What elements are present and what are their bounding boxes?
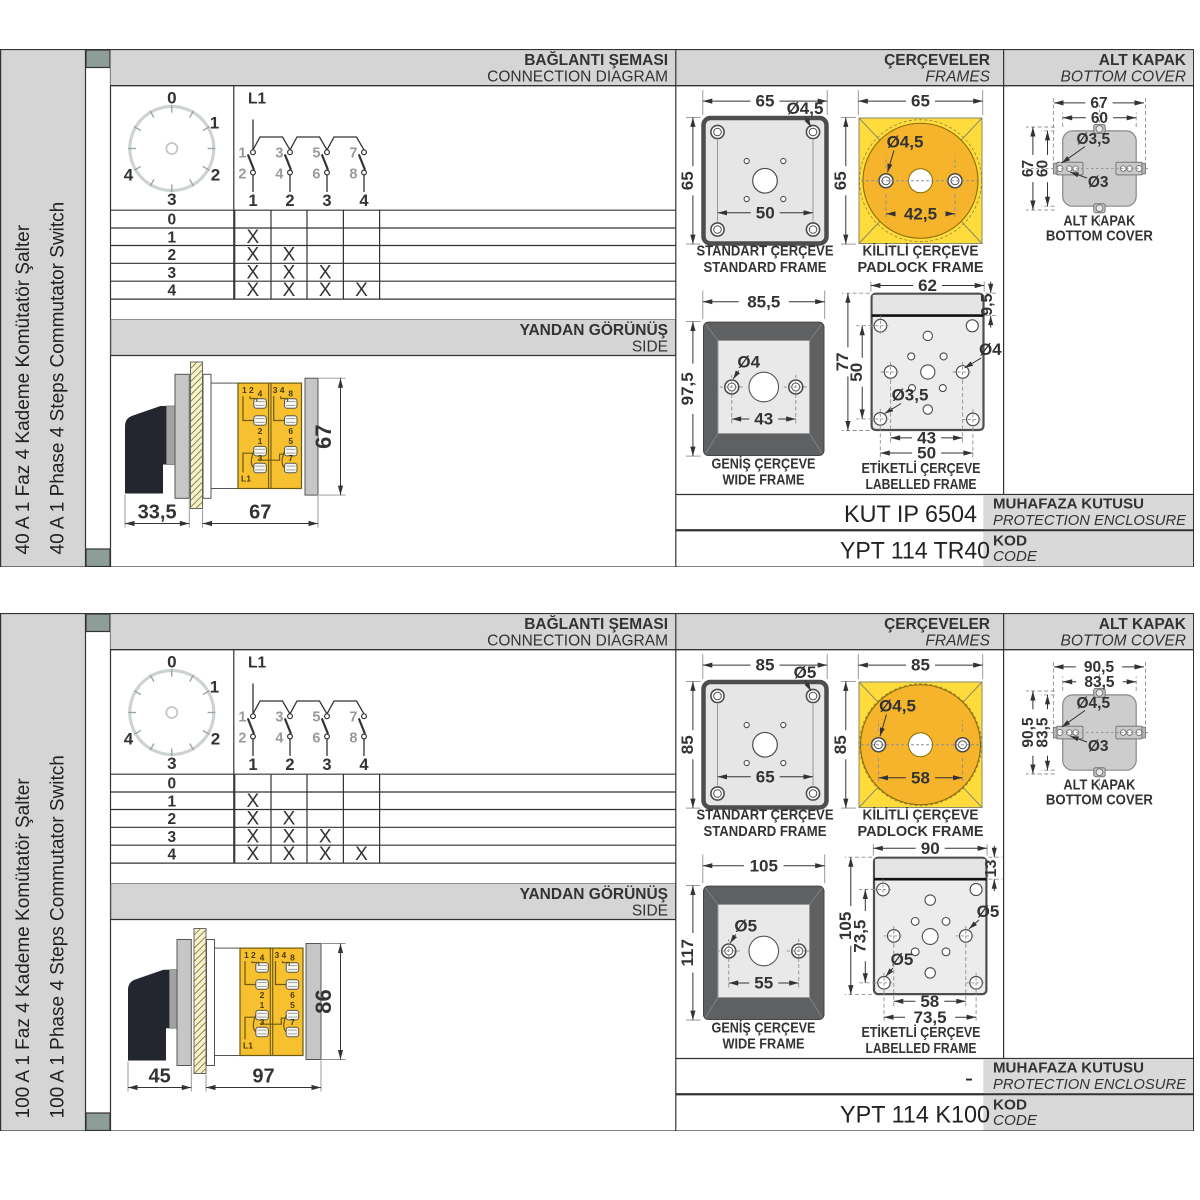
svg-text:Ø4,5: Ø4,5 [887,132,924,151]
svg-text:50: 50 [756,203,775,222]
svg-text:CODE: CODE [993,548,1038,565]
svg-text:MUHAFAZA KUTUSU: MUHAFAZA KUTUSU [993,495,1144,512]
svg-text:PADLOCK FRAME: PADLOCK FRAME [858,259,984,276]
svg-text:117: 117 [678,939,697,966]
svg-text:L1: L1 [241,473,251,483]
svg-text:45: 45 [149,1065,171,1087]
svg-text:65: 65 [756,767,775,786]
svg-text:GENİŞ ÇERÇEVE: GENİŞ ÇERÇEVE [712,1019,816,1036]
svg-text:3: 3 [167,264,176,281]
svg-text:6: 6 [290,990,295,1000]
svg-text:YANDAN GÖRÜNÜŞ: YANDAN GÖRÜNÜŞ [520,322,668,339]
svg-text:GENİŞ ÇERÇEVE: GENİŞ ÇERÇEVE [712,455,816,472]
svg-text:L1: L1 [248,654,266,671]
svg-text:KOD: KOD [993,1096,1027,1113]
svg-text:1: 1 [238,709,246,725]
svg-text:CONNECTION DIAGRAM: CONNECTION DIAGRAM [487,632,668,649]
svg-text:85: 85 [911,655,930,674]
svg-text:L1: L1 [248,90,266,107]
svg-text:BOTTOM COVER: BOTTOM COVER [1061,68,1186,85]
svg-text:83,5: 83,5 [1084,673,1115,690]
svg-text:ALT KAPAK: ALT KAPAK [1099,616,1187,633]
svg-text:0: 0 [167,775,176,792]
svg-text:8: 8 [290,952,295,962]
svg-text:2: 2 [211,165,220,184]
svg-text:6: 6 [312,730,320,746]
svg-text:50: 50 [847,362,866,381]
svg-text:7: 7 [349,709,357,725]
svg-text:1: 1 [167,229,176,246]
svg-text:62: 62 [918,276,937,295]
svg-text:5: 5 [288,436,293,446]
svg-text:X: X [283,844,296,865]
svg-text:1: 1 [248,756,257,774]
svg-text:1: 1 [260,1000,265,1010]
svg-text:X: X [355,844,368,865]
svg-text:3: 3 [167,828,176,845]
svg-text:4: 4 [167,846,176,863]
svg-text:4: 4 [275,166,283,182]
svg-text:BOTTOM COVER: BOTTOM COVER [1046,227,1153,244]
svg-text:7: 7 [288,453,293,463]
svg-text:Ø3,5: Ø3,5 [892,385,929,404]
svg-text:YANDAN GÖRÜNÜŞ: YANDAN GÖRÜNÜŞ [520,886,668,903]
svg-text:ETİKETLİ ÇERÇEVE: ETİKETLİ ÇERÇEVE [862,1024,981,1041]
svg-text:83,5: 83,5 [1035,717,1052,748]
svg-text:3: 3 [322,756,331,774]
svg-text:CONNECTION DIAGRAM: CONNECTION DIAGRAM [487,68,668,85]
svg-text:STANDARD FRAME: STANDARD FRAME [704,823,827,840]
svg-text:9,5: 9,5 [979,293,996,315]
svg-text:42,5: 42,5 [904,204,937,223]
svg-text:X: X [246,844,259,865]
svg-text:Ø3: Ø3 [1088,738,1109,755]
svg-text:X: X [355,280,368,301]
svg-text:KİLİTLİ ÇERÇEVE: KİLİTLİ ÇERÇEVE [863,806,979,823]
svg-text:Ø4: Ø4 [979,339,1002,358]
svg-text:60: 60 [1091,109,1108,126]
svg-text:2: 2 [258,426,263,436]
svg-text:1: 1 [258,436,263,446]
svg-text:YPT 114 K100: YPT 114 K100 [840,1101,990,1128]
svg-text:ÇERÇEVELER: ÇERÇEVELER [884,616,990,633]
svg-text:ÇERÇEVELER: ÇERÇEVELER [884,52,990,69]
svg-text:1: 1 [210,113,219,132]
svg-text:STANDART ÇERÇEVE: STANDART ÇERÇEVE [697,242,834,259]
svg-text:BOTTOM COVER: BOTTOM COVER [1061,632,1186,649]
svg-text:97: 97 [252,1065,274,1087]
svg-text:86: 86 [311,989,336,1013]
svg-text:1: 1 [242,385,247,395]
svg-text:65: 65 [831,171,850,190]
svg-text:Ø4,5: Ø4,5 [1076,695,1110,712]
svg-text:3: 3 [275,950,280,960]
svg-text:2: 2 [285,756,294,774]
svg-text:3: 3 [322,192,331,210]
svg-text:STANDARD FRAME: STANDARD FRAME [704,259,827,276]
svg-text:FRAMES: FRAMES [925,68,990,85]
svg-text:8: 8 [288,388,293,398]
svg-text:8: 8 [349,166,357,182]
svg-text:2: 2 [211,729,220,748]
svg-text:4: 4 [280,385,285,395]
svg-text:Ø5: Ø5 [794,663,817,682]
svg-text:Ø4: Ø4 [737,352,760,371]
svg-text:PROTECTION ENCLOSURE: PROTECTION ENCLOSURE [993,512,1187,529]
svg-text:6: 6 [288,426,293,436]
svg-text:0: 0 [167,211,176,228]
svg-text:MUHAFAZA KUTUSU: MUHAFAZA KUTUSU [993,1059,1144,1076]
svg-text:1: 1 [167,793,176,810]
svg-text:X: X [246,280,259,301]
svg-text:4: 4 [167,282,176,299]
svg-text:85: 85 [756,655,775,674]
svg-text:BOTTOM COVER: BOTTOM COVER [1046,791,1153,808]
svg-text:4: 4 [260,952,265,962]
svg-text:97,5: 97,5 [678,372,697,405]
svg-text:Ø3,5: Ø3,5 [1076,131,1110,148]
svg-text:X: X [319,844,332,865]
svg-text:5: 5 [290,1000,295,1010]
svg-text:85: 85 [678,735,697,754]
svg-text:4: 4 [258,388,263,398]
svg-text:65: 65 [756,91,775,110]
svg-text:85,5: 85,5 [747,292,780,311]
svg-text:KOD: KOD [993,532,1027,549]
svg-text:73,5: 73,5 [850,919,869,952]
svg-text:Ø4,5: Ø4,5 [879,696,916,715]
svg-text:ALT KAPAK: ALT KAPAK [1099,52,1187,69]
svg-text:LABELLED FRAME: LABELLED FRAME [866,1040,977,1057]
svg-text:4: 4 [359,756,369,774]
svg-text:3: 3 [275,709,283,725]
svg-text:6: 6 [312,166,320,182]
svg-text:L1: L1 [243,1040,253,1050]
svg-text:1: 1 [210,677,219,696]
svg-text:Ø4,5: Ø4,5 [787,99,824,118]
svg-text:4: 4 [359,192,369,210]
svg-text:BAĞLANTI ŞEMASI: BAĞLANTI ŞEMASI [524,615,668,633]
svg-text:7: 7 [290,1017,295,1027]
svg-text:65: 65 [678,171,697,190]
svg-text:2: 2 [167,246,176,263]
svg-text:90: 90 [921,838,940,857]
svg-text:-: - [965,1065,973,1092]
svg-text:2: 2 [238,166,246,182]
svg-text:67: 67 [311,424,336,448]
svg-text:5: 5 [312,145,320,161]
svg-text:SIDE: SIDE [632,338,668,355]
svg-text:Ø5: Ø5 [734,916,757,935]
svg-text:KİLİTLİ ÇERÇEVE: KİLİTLİ ÇERÇEVE [863,242,979,259]
svg-text:0: 0 [167,88,176,107]
svg-text:4: 4 [282,950,287,960]
svg-text:Ø3: Ø3 [1088,174,1109,191]
svg-text:100 A 1 Phase 4 Steps Commutat: 100 A 1 Phase 4 Steps Commutator Switch [48,755,69,1118]
svg-text:2: 2 [167,810,176,827]
svg-text:7: 7 [349,145,357,161]
svg-text:2: 2 [238,730,246,746]
svg-text:FRAMES: FRAMES [925,632,990,649]
svg-text:PROTECTION ENCLOSURE: PROTECTION ENCLOSURE [993,1076,1187,1093]
svg-text:SIDE: SIDE [632,902,668,919]
svg-text:3: 3 [167,190,176,209]
svg-text:3: 3 [273,385,278,395]
svg-text:2: 2 [249,385,254,395]
svg-text:4: 4 [275,730,283,746]
svg-text:LABELLED FRAME: LABELLED FRAME [866,476,977,493]
svg-text:0: 0 [167,652,176,671]
svg-text:1: 1 [238,145,246,161]
svg-text:67: 67 [249,501,271,523]
svg-text:STANDART ÇERÇEVE: STANDART ÇERÇEVE [697,806,834,823]
svg-text:1: 1 [248,192,257,210]
svg-text:40 A 1 Phase 4 Steps Commutato: 40 A 1 Phase 4 Steps Commutator Switch [48,201,69,554]
svg-text:X: X [319,280,332,301]
svg-text:YPT 114 TR40: YPT 114 TR40 [840,537,990,564]
svg-text:KUT IP 6504: KUT IP 6504 [844,501,977,528]
svg-text:60: 60 [1035,159,1052,176]
svg-text:BAĞLANTI ŞEMASI: BAĞLANTI ŞEMASI [524,51,668,69]
svg-text:5: 5 [312,709,320,725]
svg-text:2: 2 [260,990,265,1000]
svg-text:1: 1 [244,950,249,960]
svg-text:4: 4 [124,165,134,184]
svg-text:4: 4 [124,729,134,748]
svg-text:40 A 1 Faz 4 Kademe Komütatör: 40 A 1 Faz 4 Kademe Komütatör Şalter [13,224,34,554]
svg-text:3: 3 [275,145,283,161]
svg-text:CODE: CODE [993,1112,1038,1129]
svg-text:33,5: 33,5 [138,501,177,523]
svg-text:X: X [283,280,296,301]
svg-text:58: 58 [911,768,930,787]
svg-text:85: 85 [831,735,850,754]
svg-text:8: 8 [349,730,357,746]
svg-text:43: 43 [754,409,773,428]
svg-text:ETİKETLİ ÇERÇEVE: ETİKETLİ ÇERÇEVE [862,460,981,477]
svg-text:65: 65 [911,91,930,110]
svg-text:WIDE FRAME: WIDE FRAME [723,1035,805,1052]
svg-text:3: 3 [167,754,176,773]
svg-text:WIDE FRAME: WIDE FRAME [723,471,805,488]
svg-text:PADLOCK FRAME: PADLOCK FRAME [858,823,984,840]
svg-text:105: 105 [750,856,778,875]
svg-text:13: 13 [983,859,1000,877]
svg-text:2: 2 [285,192,294,210]
svg-text:2: 2 [251,950,256,960]
svg-text:55: 55 [754,973,773,992]
svg-text:Ø5: Ø5 [977,902,1000,921]
svg-text:100 A 1 Faz 4 Kademe Komütatör: 100 A 1 Faz 4 Kademe Komütatör Şalter [13,777,34,1118]
